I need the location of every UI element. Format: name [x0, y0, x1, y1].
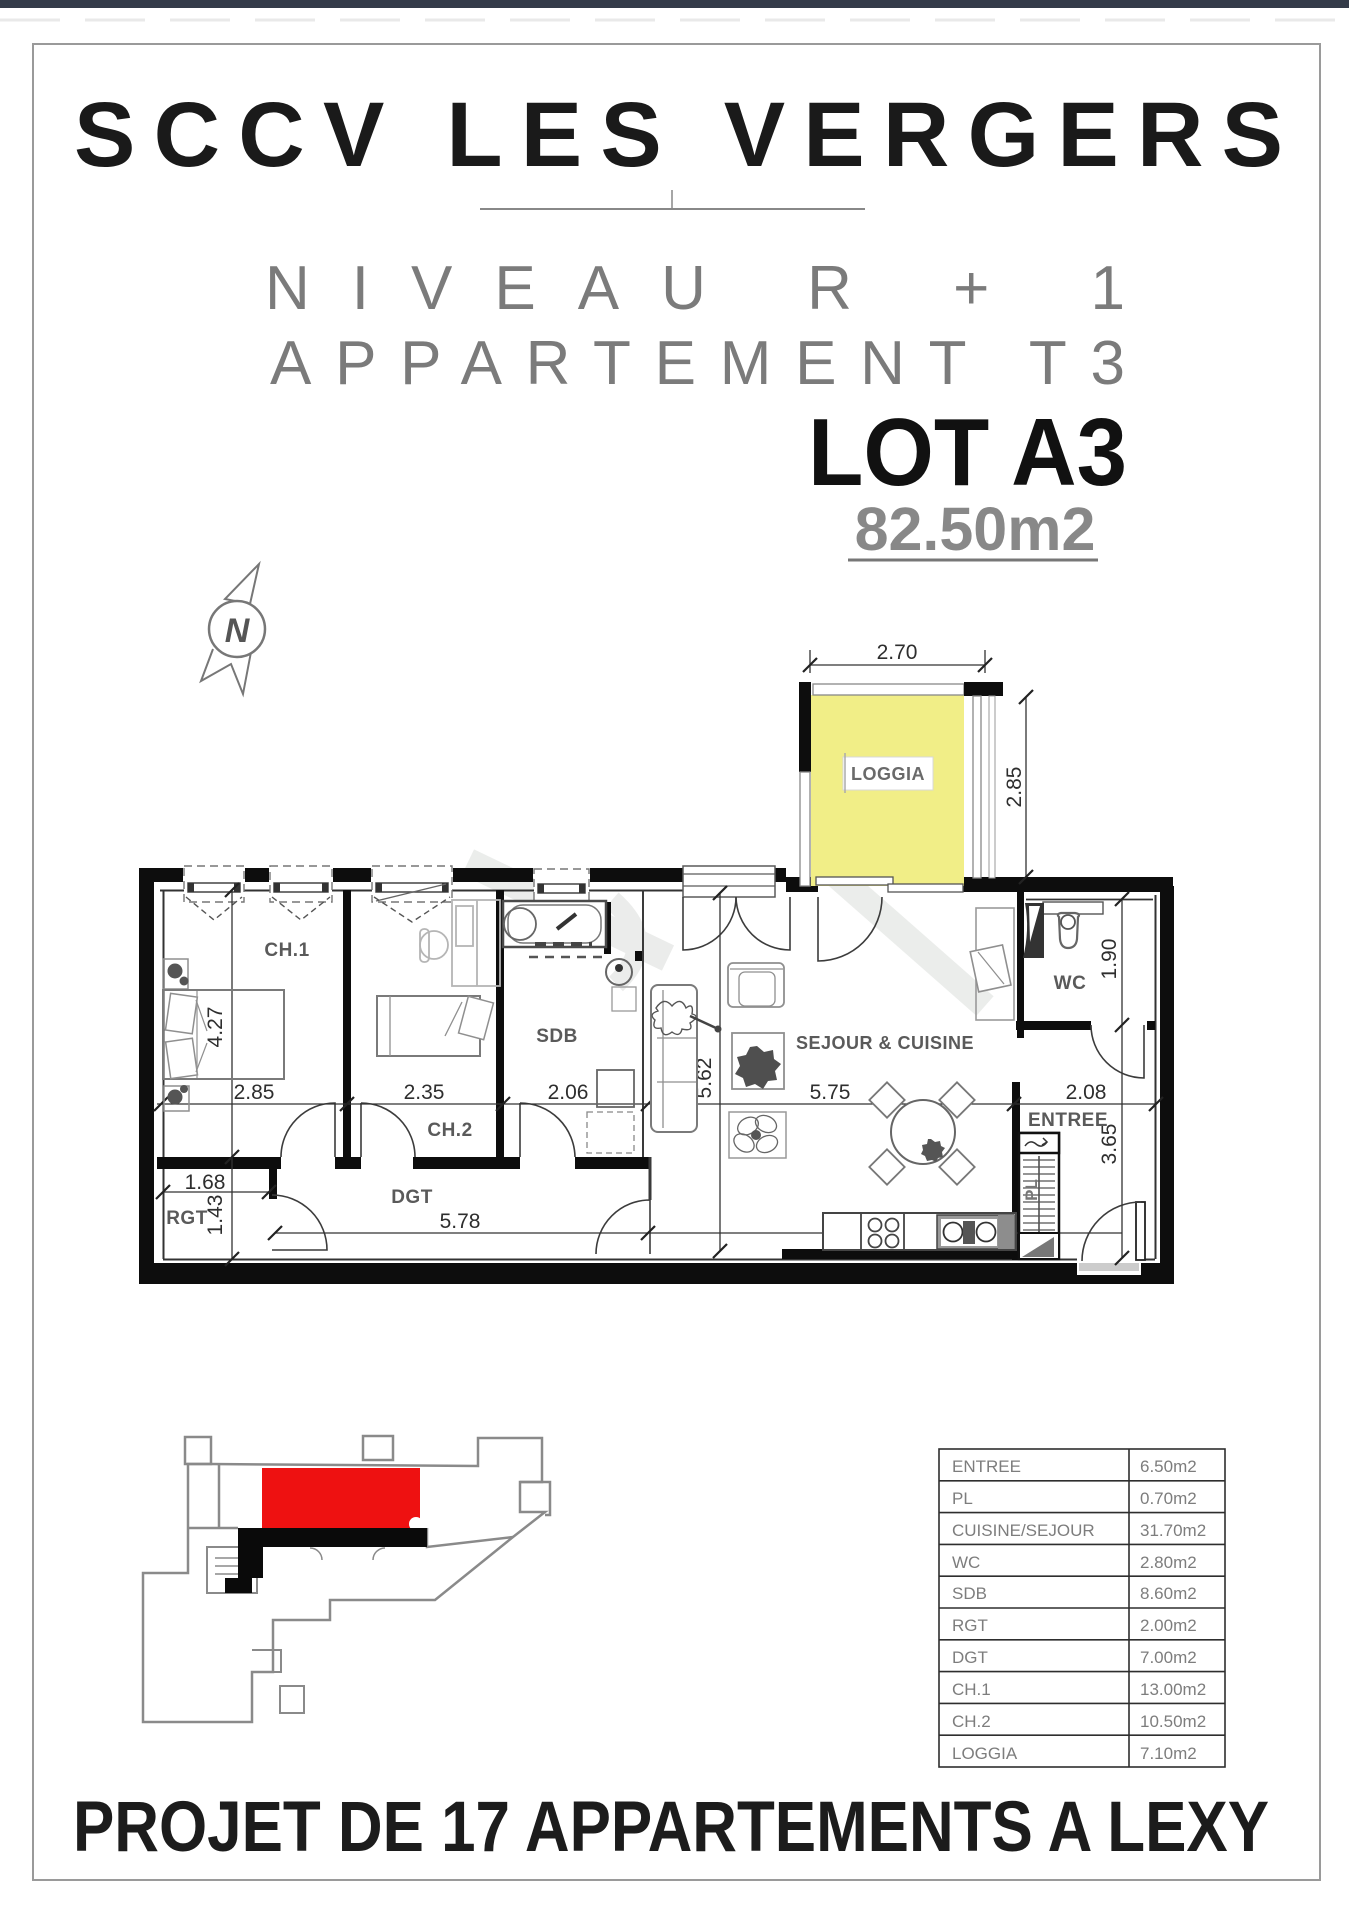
svg-text:4.27: 4.27	[204, 1007, 227, 1048]
svg-text:7.10m2: 7.10m2	[1140, 1744, 1197, 1763]
svg-text:13.00m2: 13.00m2	[1140, 1680, 1206, 1699]
svg-text:SDB: SDB	[536, 1026, 578, 1047]
svg-text:ENTREE: ENTREE	[1028, 1110, 1108, 1131]
svg-text:DGT: DGT	[391, 1187, 433, 1208]
svg-text:2.85: 2.85	[1003, 767, 1026, 808]
svg-text:2.70: 2.70	[877, 641, 918, 664]
svg-text:10.50m2: 10.50m2	[1140, 1712, 1206, 1731]
svg-text:ENTREE: ENTREE	[952, 1457, 1021, 1476]
svg-text:LOT A3: LOT A3	[808, 399, 1127, 506]
svg-text:2.08: 2.08	[1066, 1081, 1107, 1104]
svg-text:2.00m2: 2.00m2	[1140, 1616, 1197, 1635]
svg-text:2.80m2: 2.80m2	[1140, 1553, 1197, 1572]
svg-text:5.78: 5.78	[440, 1210, 481, 1233]
svg-text:WC: WC	[952, 1553, 980, 1572]
svg-text:6.50m2: 6.50m2	[1140, 1457, 1197, 1476]
svg-text:82.50m2: 82.50m2	[855, 495, 1096, 563]
svg-text:SCCV LES VERGERS: SCCV LES VERGERS	[74, 84, 1283, 186]
svg-text:1.90: 1.90	[1098, 939, 1121, 980]
svg-text:2.06: 2.06	[548, 1081, 589, 1104]
svg-text:NIVEAU R + 1: NIVEAU R + 1	[265, 254, 1125, 323]
svg-text:SEJOUR & CUISINE: SEJOUR & CUISINE	[796, 1033, 974, 1053]
svg-text:LOGGIA: LOGGIA	[851, 764, 925, 784]
svg-text:RGT: RGT	[952, 1616, 988, 1635]
svg-text:2.35: 2.35	[404, 1081, 445, 1104]
svg-text:CH.1: CH.1	[952, 1680, 991, 1699]
svg-text:7.00m2: 7.00m2	[1140, 1648, 1197, 1667]
svg-text:CH.2: CH.2	[952, 1712, 991, 1731]
svg-text:CH.2: CH.2	[427, 1120, 472, 1141]
svg-text:5.75: 5.75	[810, 1081, 851, 1104]
svg-text:SDB: SDB	[952, 1584, 987, 1603]
svg-text:N: N	[225, 612, 251, 650]
svg-text:CUISINE/SEJOUR: CUISINE/SEJOUR	[952, 1521, 1095, 1540]
svg-text:2.85: 2.85	[234, 1081, 275, 1104]
svg-text:PROJET DE 17 APPARTEMENTS A LE: PROJET DE 17 APPARTEMENTS A LEXY	[73, 1788, 1269, 1867]
svg-text:LOGGIA: LOGGIA	[952, 1744, 1018, 1763]
svg-text:31.70m2: 31.70m2	[1140, 1521, 1206, 1540]
svg-text:RGT: RGT	[166, 1208, 208, 1229]
svg-text:APPARTEMENT T3: APPARTEMENT T3	[270, 329, 1125, 398]
svg-text:8.60m2: 8.60m2	[1140, 1584, 1197, 1603]
svg-text:CH.1: CH.1	[264, 940, 309, 961]
svg-text:WC: WC	[1054, 973, 1087, 994]
svg-text:0.70m2: 0.70m2	[1140, 1489, 1197, 1508]
svg-text:PL: PL	[1022, 1179, 1041, 1201]
svg-text:DGT: DGT	[952, 1648, 988, 1667]
svg-text:1.68: 1.68	[185, 1171, 226, 1194]
svg-text:PL: PL	[952, 1489, 973, 1508]
